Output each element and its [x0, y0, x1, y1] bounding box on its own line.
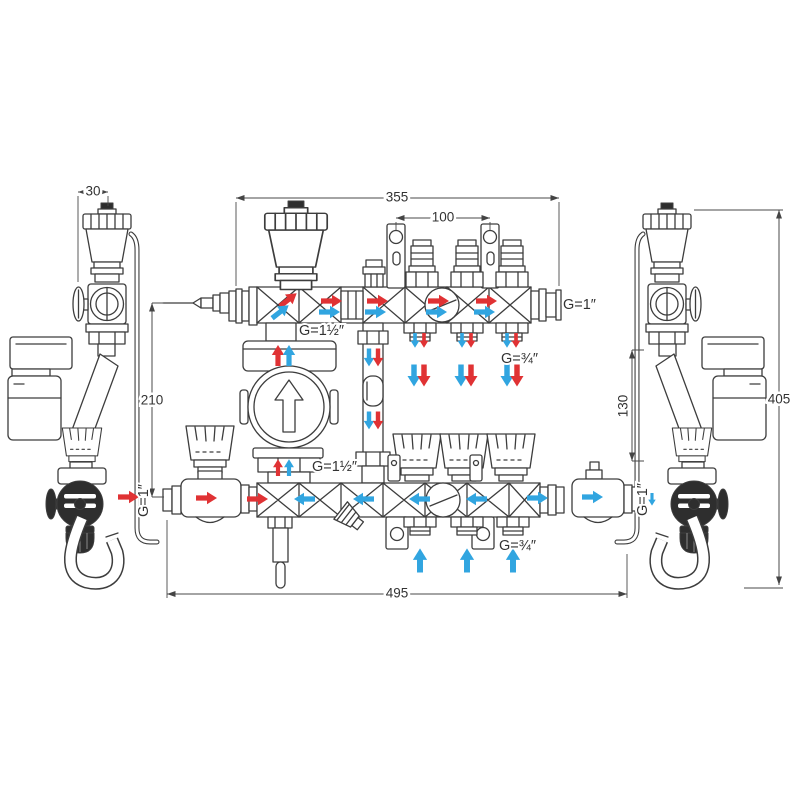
top-outlet [496, 323, 528, 341]
dimension-355: 355 [386, 190, 409, 205]
mounting-bracket-left [387, 224, 405, 288]
return-arrow [454, 365, 467, 387]
zone-actuator [487, 434, 535, 481]
bottom-outlet [497, 517, 529, 535]
top-manifold-bar [229, 287, 561, 325]
sensor-well [268, 517, 292, 588]
dimension-100: 100 [432, 210, 455, 225]
front-view [163, 201, 640, 588]
flow-meter [406, 240, 438, 287]
label-bottom-inlet-left: G=1″ [136, 484, 152, 517]
supply-arrow [417, 365, 430, 387]
supply-arrow [464, 365, 477, 387]
temperature-probe [163, 293, 229, 313]
flow-meter [451, 240, 483, 287]
label-bottom-outlet-right: G=1″ [635, 483, 651, 516]
label-pump-line: G=1½″ [312, 459, 357, 475]
right-side-view [617, 203, 766, 583]
label-top-manifold-left: G=1½″ [299, 323, 344, 339]
outlet-valve [572, 462, 640, 523]
inlet-valve [163, 426, 257, 523]
label-top-outlets: G=¾″ [501, 351, 538, 367]
dimension-130: 130 [616, 395, 631, 418]
flow-meter [496, 240, 528, 287]
manifold-air-vent [265, 201, 327, 289]
return-arrow [413, 548, 427, 572]
label-bottom-outlets: G=¾″ [499, 538, 536, 554]
return-pipe-sight-glass [356, 323, 390, 483]
manifold-technical-drawing: 30 355 100 210 130 405 495 G=1½″ G=1″ G=… [0, 0, 800, 800]
supply-arrow [510, 365, 523, 387]
top-outlet [451, 323, 483, 341]
label-top-manifold-right: G=1″ [563, 297, 596, 313]
dimension-210: 210 [141, 393, 164, 408]
drawing-canvas: 30 355 100 210 130 405 495 G=1½″ G=1″ G=… [0, 0, 800, 800]
return-arrow [460, 548, 474, 572]
fill-valve-cap [363, 260, 385, 287]
return-arrow [500, 365, 513, 387]
bottom-outlet [404, 517, 436, 535]
return-arrow [407, 365, 420, 387]
top-outlet [404, 323, 436, 341]
dimension-495: 495 [386, 586, 409, 601]
dimension-30: 30 [85, 184, 100, 199]
left-side-view [8, 203, 157, 583]
dimension-405: 405 [768, 392, 791, 407]
